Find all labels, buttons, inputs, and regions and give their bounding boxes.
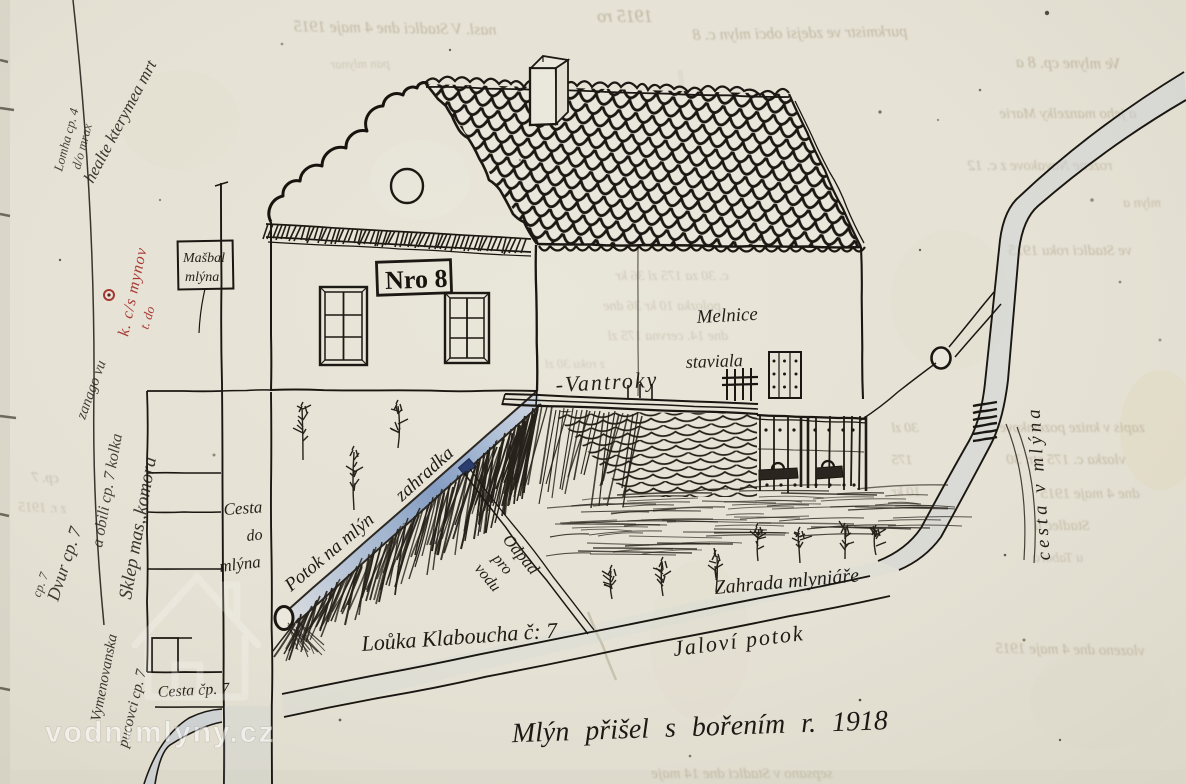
svg-text:z roku 30 zl: z roku 30 zl: [545, 356, 606, 371]
svg-text:sepsano v Stadlci dne 14 maje: sepsano v Stadlci dne 14 maje: [651, 766, 833, 782]
svg-text:vlozeno dne 4 maje 1915: vlozeno dne 4 maje 1915: [995, 641, 1145, 660]
svg-text:c. 30 za 175 zl 36 kr: c. 30 za 175 zl 36 kr: [615, 269, 729, 284]
svg-text:175: 175: [892, 453, 913, 468]
svg-text:dne 14. cervna 175 zl: dne 14. cervna 175 zl: [608, 329, 728, 344]
svg-text:vodnimlyny.cz: vodnimlyny.cz: [45, 716, 276, 749]
svg-text:Nro 8: Nro 8: [385, 264, 448, 295]
svg-text:nasl. V Stadlci dne 4 maje 191: nasl. V Stadlci dne 4 maje 1915: [294, 18, 497, 39]
svg-text:10 kr: 10 kr: [891, 485, 921, 500]
svg-text:Melnice: Melnice: [695, 304, 758, 328]
svg-text:vlozka c. 175 str. 30: vlozka c. 175 str. 30: [1006, 452, 1126, 468]
svg-text:dne 4 maje 1915: dne 4 maje 1915: [1040, 486, 1140, 502]
svg-text:Mašbal: Mašbal: [182, 251, 225, 266]
svg-text:pan mlynar: pan mlynar: [329, 55, 391, 71]
svg-text:do: do: [246, 526, 264, 545]
svg-text:Ve mlyne cp. 8 a: Ve mlyne cp. 8 a: [1016, 54, 1121, 73]
svg-text:1915 ro: 1915 ro: [597, 6, 653, 26]
svg-text:Cesta: Cesta: [223, 497, 263, 519]
svg-text:ve Stadlci roku 1915: ve Stadlci roku 1915: [1008, 243, 1132, 259]
svg-text:cp. 7: cp. 7: [30, 470, 59, 486]
svg-text:zapis v knize pozemkove: zapis v knize pozemkove: [999, 420, 1146, 436]
svg-text:mlyn a: mlyn a: [1123, 196, 1161, 211]
svg-text:30 zl: 30 zl: [891, 421, 919, 436]
svg-text:mlýna: mlýna: [185, 270, 219, 285]
svg-text:staviala: staviala: [685, 350, 743, 372]
svg-text:z r. 1915: z r. 1915: [18, 500, 67, 517]
